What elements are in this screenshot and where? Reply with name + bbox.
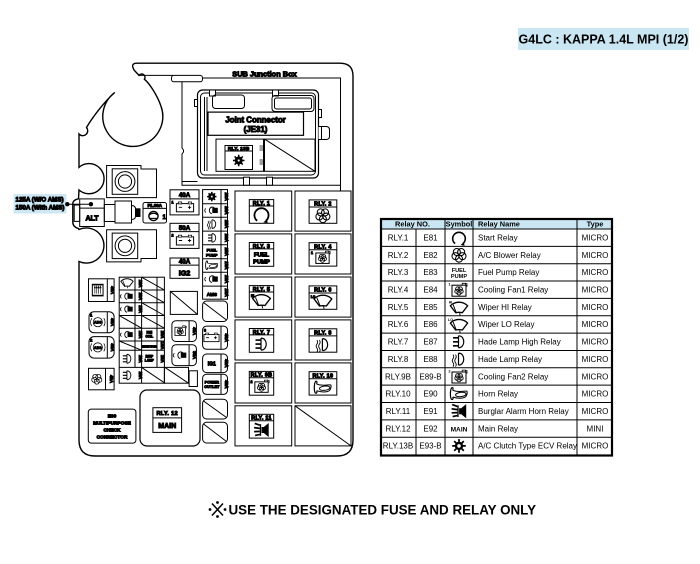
svg-text:40A: 40A (110, 343, 115, 352)
svg-text:PUMP: PUMP (253, 259, 270, 265)
svg-text:2: 2 (448, 368, 451, 373)
svg-text:10A: 10A (138, 371, 143, 379)
svg-text:COIL: COIL (145, 335, 153, 339)
svg-text:Cooling Fan2 Relay: Cooling Fan2 Relay (478, 372, 548, 381)
svg-text:RLY.13B: RLY.13B (383, 442, 413, 451)
svg-text:Wiper HI Relay: Wiper HI Relay (478, 303, 532, 312)
svg-text:F1.80A: F1.80A (147, 203, 162, 208)
svg-text:Cooling Fan1 Relay: Cooling Fan1 Relay (478, 286, 548, 295)
svg-text:Joint Connector: Joint Connector (225, 116, 286, 125)
svg-text:MICRO: MICRO (582, 234, 609, 243)
svg-text:RLY. 6: RLY. 6 (314, 288, 331, 294)
svg-text:1: 1 (311, 251, 313, 255)
svg-text:Start Relay: Start Relay (478, 234, 518, 243)
svg-text:RLY.12: RLY.12 (385, 424, 411, 433)
svg-text:MICRO: MICRO (582, 390, 609, 399)
svg-text:25A: 25A (224, 247, 229, 256)
svg-text:20A: 20A (224, 206, 229, 215)
svg-text:LO: LO (311, 295, 316, 299)
svg-text:MICRO: MICRO (582, 355, 609, 364)
svg-text:E82: E82 (423, 251, 438, 260)
svg-text:150A (With AMS): 150A (With AMS) (16, 205, 65, 212)
svg-text:AMS: AMS (207, 292, 217, 297)
svg-text:RLY. 3: RLY. 3 (253, 244, 270, 250)
svg-text:E85: E85 (423, 303, 438, 312)
svg-text:10A: 10A (224, 192, 229, 201)
svg-text:15A: 15A (160, 342, 165, 350)
svg-text:RLY.7: RLY.7 (388, 338, 409, 347)
svg-text:RLY. 12: RLY. 12 (156, 411, 177, 417)
svg-text:RLY.6: RLY.6 (388, 320, 409, 329)
svg-text:Type: Type (587, 219, 604, 228)
svg-text:OUTLET: OUTLET (204, 385, 220, 389)
svg-text:MICRO: MICRO (582, 407, 609, 416)
svg-text:Main Relay: Main Relay (478, 424, 518, 433)
svg-text:RLY. 11: RLY. 11 (251, 416, 271, 422)
svg-text:50A: 50A (179, 225, 191, 232)
svg-text:E92: E92 (423, 424, 438, 433)
svg-text:RLY.9B: RLY.9B (385, 372, 411, 381)
svg-text:10A: 10A (138, 355, 143, 363)
svg-text:MICRO: MICRO (582, 268, 609, 277)
svg-text:E83: E83 (423, 268, 438, 277)
svg-text:HI: HI (449, 301, 453, 305)
svg-text:RLY. 2: RLY. 2 (314, 202, 331, 208)
svg-text:RLY. 4: RLY. 4 (314, 244, 331, 250)
svg-text:RLY. 1: RLY. 1 (253, 201, 270, 207)
svg-text:E90: E90 (423, 390, 438, 399)
svg-text:Relay NO.: Relay NO. (395, 219, 430, 228)
svg-text:1: 1 (172, 201, 174, 205)
svg-text:20A: 20A (224, 234, 229, 243)
svg-text:E89-B: E89-B (419, 372, 441, 381)
svg-text:RLY. 13B: RLY. 13B (228, 146, 250, 152)
svg-text:IG2: IG2 (179, 269, 191, 278)
svg-text:E84: E84 (423, 286, 438, 295)
svg-text:RLY. 10: RLY. 10 (313, 373, 334, 379)
svg-text:125A (W/O AMS): 125A (W/O AMS) (16, 197, 64, 204)
svg-text:E93-B: E93-B (419, 442, 441, 451)
svg-text:MAIN: MAIN (158, 423, 176, 430)
svg-text:2: 2 (251, 380, 253, 384)
svg-text:LAMP: LAMP (145, 359, 155, 363)
svg-text:FUEL: FUEL (254, 253, 270, 259)
svg-text:RLY. 8: RLY. 8 (314, 331, 331, 337)
svg-text:E87: E87 (423, 338, 438, 347)
svg-text:MICRO: MICRO (582, 251, 609, 260)
svg-text:MICRO: MICRO (582, 286, 609, 295)
svg-text:MULTIPURPOSE: MULTIPURPOSE (93, 420, 132, 426)
svg-text:1: 1 (90, 314, 92, 318)
svg-text:MICRO: MICRO (582, 320, 609, 329)
svg-text:A/C Blower Relay: A/C Blower Relay (478, 251, 541, 260)
svg-text:RLY. 5: RLY. 5 (253, 287, 270, 293)
svg-text:2: 2 (172, 234, 174, 238)
svg-text:1: 1 (448, 282, 451, 287)
svg-text:RLY. 7: RLY. 7 (253, 330, 270, 336)
svg-text:40A: 40A (192, 327, 197, 336)
svg-text:40A: 40A (224, 359, 229, 368)
svg-text:40A: 40A (110, 286, 115, 295)
svg-text:INJECTOR: INJECTOR (142, 344, 156, 348)
svg-text:MINI: MINI (587, 424, 604, 433)
svg-text:E88: E88 (423, 355, 438, 364)
svg-text:RLY.1: RLY.1 (388, 234, 409, 243)
svg-text:Relay Name: Relay Name (478, 219, 520, 228)
svg-text:15A: 15A (138, 305, 143, 313)
svg-text:USE THE DESIGNATED FUSE AND RE: USE THE DESIGNATED FUSE AND RELAY ONLY (229, 503, 537, 518)
svg-text:CONNECTOR: CONNECTOR (97, 435, 128, 441)
svg-text:Burglar Alarm Horn Relay: Burglar Alarm Horn Relay (478, 407, 569, 416)
svg-text:PUMP: PUMP (206, 252, 218, 257)
svg-text:E99: E99 (108, 413, 117, 419)
svg-text:LO: LO (448, 318, 453, 322)
svg-text:RLY.11: RLY.11 (386, 407, 411, 416)
svg-text:Wiper LO Relay: Wiper LO Relay (478, 320, 534, 329)
svg-text:SUB Junction Box: SUB Junction Box (232, 69, 297, 78)
svg-text:ALT: ALT (85, 216, 99, 223)
svg-text:1: 1 (163, 215, 167, 221)
svg-text:30A: 30A (192, 351, 197, 360)
svg-text:Hade Lamp High Relay: Hade Lamp High Relay (478, 338, 561, 347)
svg-text:MICRO: MICRO (582, 303, 609, 312)
svg-text:10A: 10A (160, 355, 165, 363)
svg-text:MICRO: MICRO (582, 338, 609, 347)
svg-text:E91: E91 (423, 407, 438, 416)
svg-text:40A: 40A (179, 192, 191, 199)
svg-text:(JE31): (JE31) (244, 125, 268, 134)
svg-text:RLY.3: RLY.3 (388, 268, 409, 277)
svg-text:15A: 15A (224, 275, 229, 284)
svg-text:15A: 15A (224, 261, 229, 270)
svg-text:CHECK: CHECK (103, 428, 121, 434)
svg-text:40A: 40A (224, 380, 229, 389)
svg-text:Hade Lamp Relay: Hade Lamp Relay (478, 355, 542, 364)
svg-text:MICRO: MICRO (582, 372, 609, 381)
svg-text:HI: HI (251, 294, 254, 298)
svg-text:RLY. 9B: RLY. 9B (251, 373, 273, 379)
svg-text:RLY.2: RLY.2 (388, 251, 409, 260)
svg-text:RLY.4: RLY.4 (388, 286, 409, 295)
svg-text:25A: 25A (224, 220, 229, 229)
svg-text:G4LC : KAPPA 1.4L MPI (1/2): G4LC : KAPPA 1.4L MPI (1/2) (519, 33, 689, 47)
svg-text:RLY.10: RLY.10 (385, 390, 411, 399)
svg-text:RLY.5: RLY.5 (388, 303, 409, 312)
svg-text:POWER: POWER (205, 380, 220, 384)
svg-text:E86: E86 (423, 320, 438, 329)
svg-text:40A: 40A (109, 375, 114, 384)
svg-text:10A: 10A (138, 280, 143, 288)
svg-text:40A: 40A (179, 259, 191, 266)
svg-text:3: 3 (204, 329, 206, 333)
svg-text:Horn Relay: Horn Relay (478, 390, 518, 399)
svg-text:10A: 10A (138, 292, 143, 300)
svg-text:20A: 20A (160, 331, 165, 339)
svg-text:E81: E81 (423, 234, 438, 243)
svg-text:PUMP: PUMP (451, 274, 467, 280)
svg-text:IG1: IG1 (208, 361, 216, 367)
svg-text:40A: 40A (110, 318, 115, 327)
svg-text:15A: 15A (138, 331, 143, 339)
svg-text:MICRO: MICRO (582, 442, 609, 451)
svg-text:Fuel Pump Relay: Fuel Pump Relay (478, 268, 539, 277)
svg-text:Symbol: Symbol (446, 219, 473, 228)
svg-text:2: 2 (90, 339, 92, 343)
svg-text:A/C Clutch Type ECV Relay: A/C Clutch Type ECV Relay (478, 442, 577, 451)
svg-text:40A: 40A (224, 333, 229, 342)
svg-text:RLY.8: RLY.8 (388, 355, 409, 364)
svg-text:15A: 15A (224, 288, 229, 297)
svg-text:MAIN: MAIN (451, 426, 468, 433)
